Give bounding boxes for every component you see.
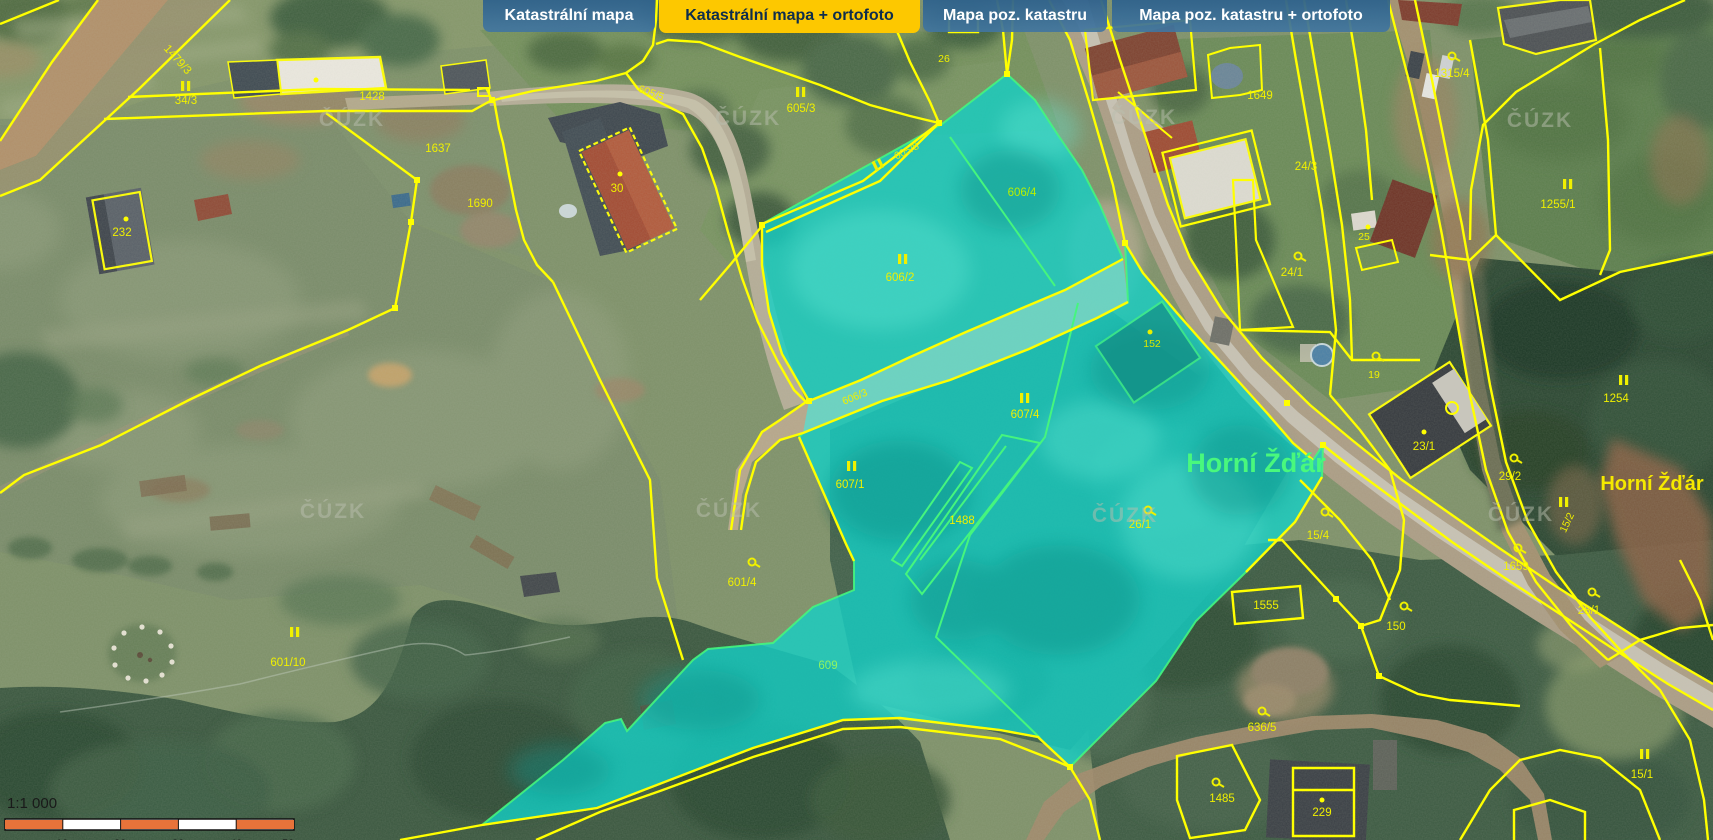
svg-text:232: 232 (112, 227, 131, 239)
svg-text:601/4: 601/4 (728, 577, 757, 589)
svg-text:24/1: 24/1 (1281, 267, 1303, 279)
svg-text:19: 19 (1368, 369, 1380, 381)
svg-text:28/1: 28/1 (1578, 605, 1600, 617)
svg-text:601/10: 601/10 (270, 657, 305, 669)
svg-text:1659: 1659 (1503, 561, 1529, 573)
svg-text:1637: 1637 (425, 143, 451, 155)
svg-text:ČÚZK: ČÚZK (1111, 105, 1177, 129)
svg-text:23/1: 23/1 (1413, 441, 1435, 453)
svg-text:29/2: 29/2 (1499, 471, 1521, 483)
svg-text:152: 152 (1143, 338, 1161, 350)
svg-text:229: 229 (1312, 807, 1331, 819)
svg-text:1428: 1428 (359, 91, 385, 103)
svg-text:24/3: 24/3 (1295, 161, 1317, 173)
svg-text:ČÚZK: ČÚZK (300, 499, 366, 523)
svg-text:1485: 1485 (1209, 793, 1235, 805)
svg-text:636/5: 636/5 (1248, 722, 1277, 734)
svg-text:26: 26 (938, 53, 950, 65)
svg-text:1315/4: 1315/4 (1434, 68, 1470, 80)
svg-text:606/2: 606/2 (886, 272, 915, 284)
svg-text:Horní Žďár: Horní Žďár (1186, 447, 1326, 478)
svg-text:25: 25 (1358, 231, 1370, 243)
svg-text:15/4: 15/4 (1307, 530, 1330, 542)
svg-text:Horní Žďár: Horní Žďár (1600, 471, 1703, 495)
svg-text:605/3: 605/3 (787, 103, 816, 115)
svg-text:609: 609 (818, 660, 837, 672)
svg-text:1690: 1690 (467, 198, 493, 210)
svg-text:34/3: 34/3 (175, 95, 197, 107)
svg-text:607/1: 607/1 (836, 479, 865, 491)
svg-text:ČÚZK: ČÚZK (319, 107, 385, 131)
svg-text:ČÚZK: ČÚZK (696, 498, 762, 522)
svg-text:15/1: 15/1 (1631, 769, 1653, 781)
svg-text:ČÚZK: ČÚZK (1488, 502, 1554, 526)
svg-text:1255/1: 1255/1 (1540, 199, 1575, 211)
svg-text:ČÚZK: ČÚZK (1507, 108, 1573, 132)
svg-text:ČÚZK: ČÚZK (1092, 503, 1158, 527)
svg-text:150: 150 (1386, 621, 1405, 633)
svg-text:30: 30 (611, 183, 624, 195)
svg-text:1649: 1649 (1247, 90, 1273, 102)
svg-text:ČÚZK: ČÚZK (715, 106, 781, 130)
svg-text:606/4: 606/4 (1008, 187, 1037, 199)
svg-text:1488: 1488 (949, 515, 975, 527)
svg-text:1254: 1254 (1603, 393, 1629, 405)
svg-text:607/4: 607/4 (1011, 409, 1040, 421)
svg-text:1555: 1555 (1253, 600, 1279, 612)
